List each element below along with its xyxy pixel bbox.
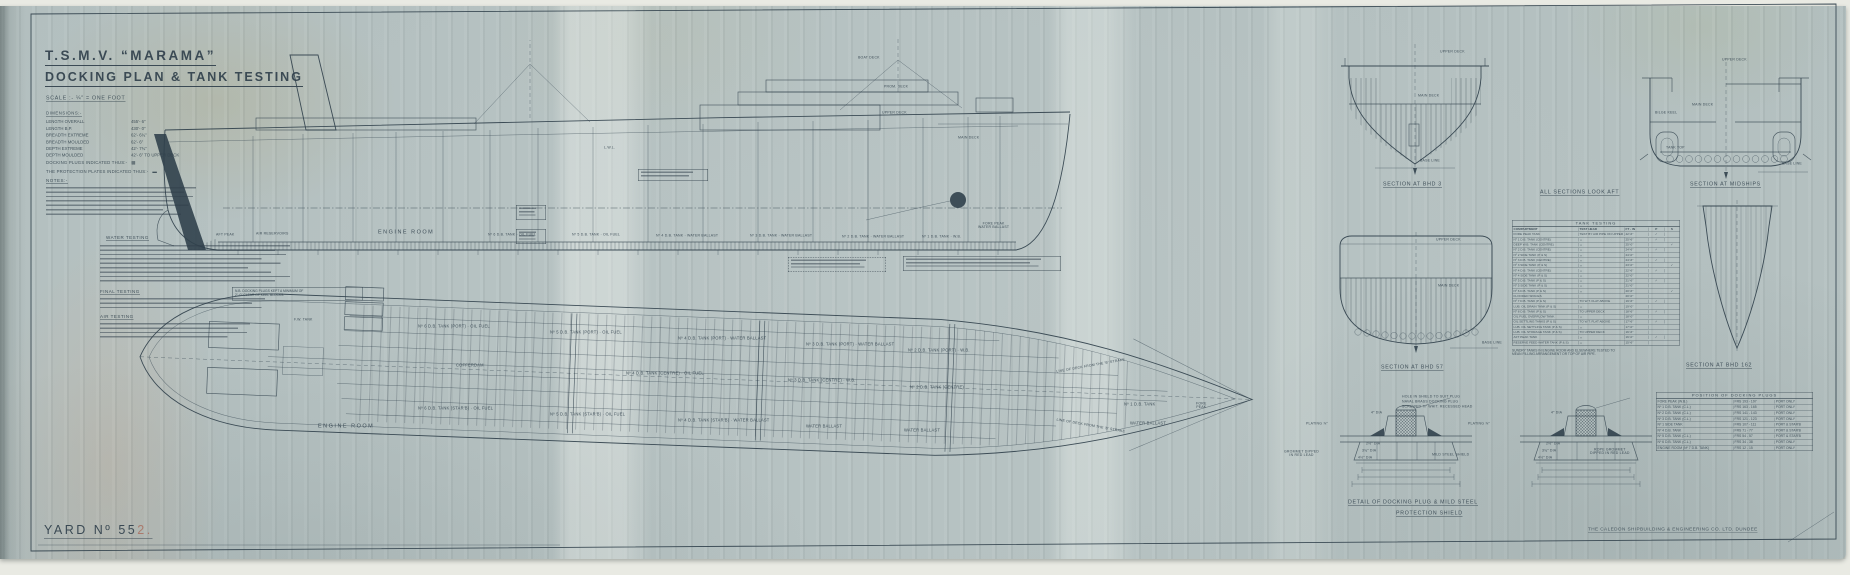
section-bhd162-drawing [1695,200,1780,358]
engine-seat-port [208,321,279,350]
section-midships-drawing [1638,48,1813,183]
profile-keel-line [218,114,1070,250]
engine-seat-starboard [207,367,278,396]
floor-lightening-holes [1667,156,1788,163]
funnel [290,55,336,130]
plug-detail-left [1332,396,1480,492]
section-bhd57-drawing [1330,232,1502,357]
blueprint-scan: { "document": { "title_line1": "T.S.M.V.… [0,0,1850,575]
anchor [950,192,966,208]
plug-detail-right [1512,396,1660,492]
profile-drawing [138,38,1088,263]
section-bhd3-drawing [1335,40,1495,180]
